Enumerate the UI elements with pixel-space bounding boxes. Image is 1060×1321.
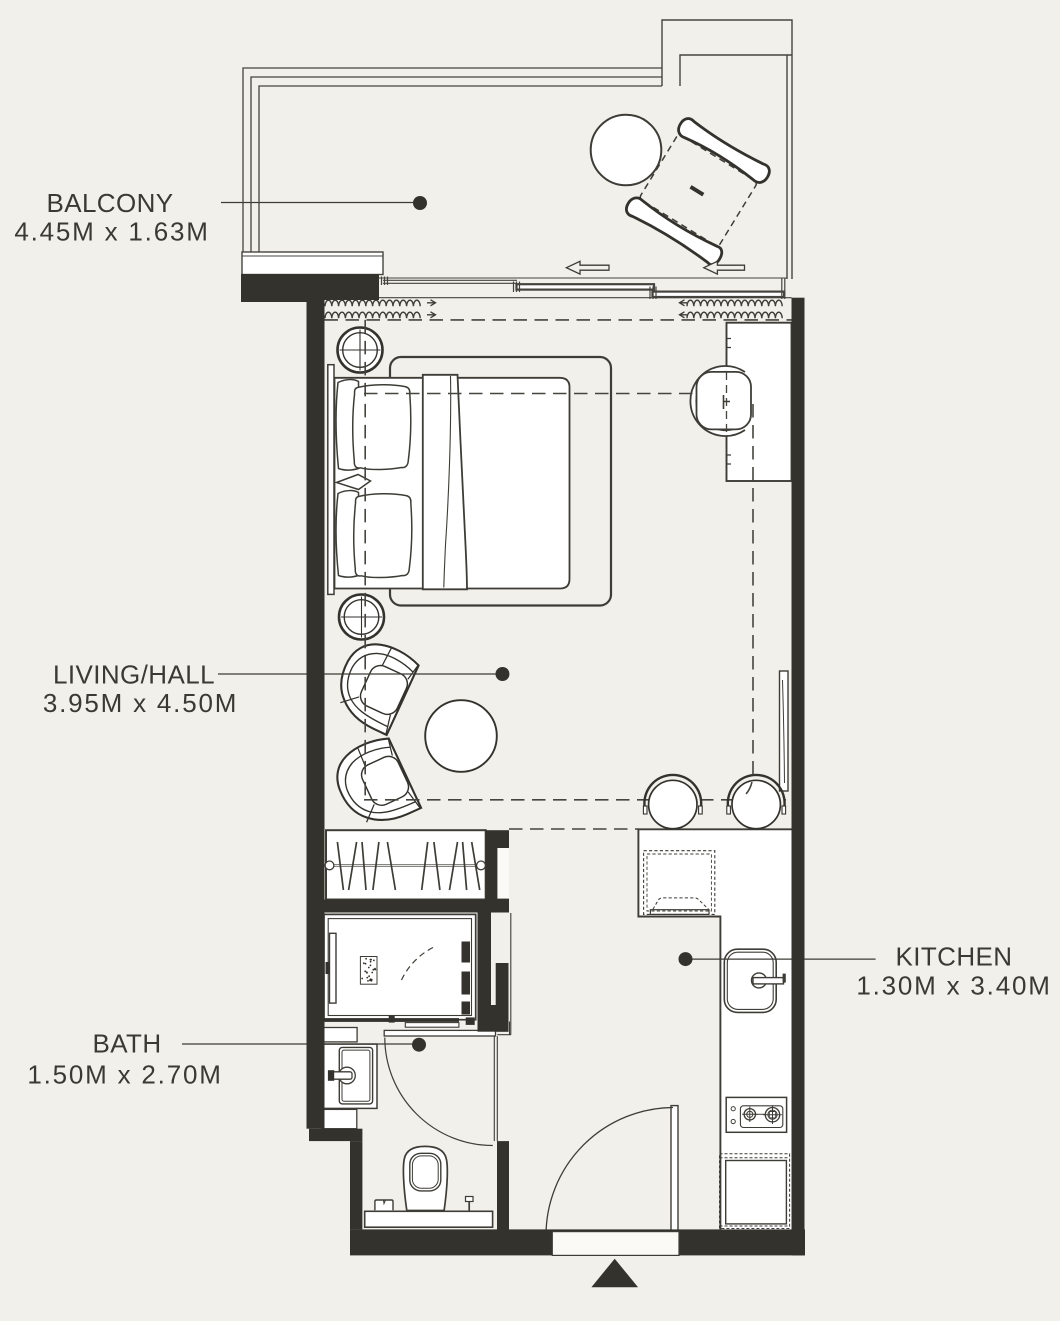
svg-text:1.50M x 2.70M: 1.50M x 2.70M: [27, 1060, 222, 1090]
svg-text:BATH: BATH: [92, 1029, 161, 1059]
svg-text:BALCONY: BALCONY: [46, 188, 173, 218]
svg-text:KITCHEN: KITCHEN: [896, 942, 1013, 972]
svg-text:LIVING/HALL: LIVING/HALL: [53, 660, 215, 690]
svg-text:3.95M x 4.50M: 3.95M x 4.50M: [43, 688, 238, 718]
svg-text:4.45M x 1.63M: 4.45M x 1.63M: [14, 217, 209, 247]
svg-text:1.30M x 3.40M: 1.30M x 3.40M: [856, 971, 1051, 1001]
